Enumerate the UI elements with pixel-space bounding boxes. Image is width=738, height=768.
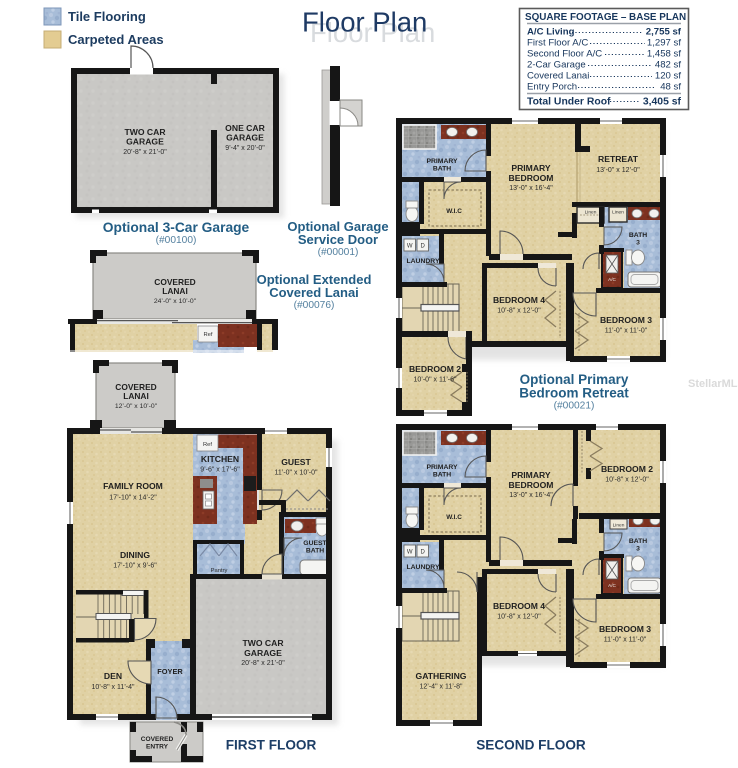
svg-text:KITCHEN: KITCHEN <box>201 454 239 464</box>
svg-text:BEDROOM 3: BEDROOM 3 <box>599 624 651 634</box>
svg-text:GARAGE: GARAGE <box>244 648 282 658</box>
svg-text:13’-0" x 12’-0": 13’-0" x 12’-0" <box>596 167 640 174</box>
svg-text:482 sf: 482 sf <box>655 60 681 71</box>
svg-text:SQUARE FOOTAGE – BASE PLAN: SQUARE FOOTAGE – BASE PLAN <box>525 12 686 23</box>
svg-text:12’-0" x 10’-0": 12’-0" x 10’-0" <box>115 403 158 410</box>
svg-text:BATH: BATH <box>433 166 451 173</box>
svg-text:FOYER: FOYER <box>157 667 183 676</box>
svg-text:BATH: BATH <box>629 538 647 545</box>
svg-text:3: 3 <box>636 546 640 553</box>
svg-text:PRIMARY: PRIMARY <box>426 158 458 165</box>
svg-text:12’-4" x 11’-8": 12’-4" x 11’-8" <box>420 684 463 691</box>
svg-text:17’-10" x 9’-6": 17’-10" x 9’-6" <box>113 563 157 570</box>
svg-text:Linen: Linen <box>585 210 597 216</box>
svg-text:10’-8" x 12’-0": 10’-8" x 12’-0" <box>497 614 541 621</box>
svg-text:GUEST: GUEST <box>303 540 327 547</box>
svg-text:DEN: DEN <box>104 671 122 681</box>
svg-text:11’-0" x 11’-0": 11’-0" x 11’-0" <box>605 328 648 335</box>
svg-text:A/C: A/C <box>608 583 616 588</box>
svg-text:BEDROOM 3: BEDROOM 3 <box>600 315 652 325</box>
svg-text:2,755 sf: 2,755 sf <box>646 27 682 38</box>
svg-text:1,458 sf: 1,458 sf <box>647 49 681 60</box>
svg-text:1,297 sf: 1,297 sf <box>647 38 681 49</box>
svg-text:SECOND FLOOR: SECOND FLOOR <box>476 738 586 753</box>
svg-text:Pantry: Pantry <box>211 568 228 574</box>
svg-text:120 sf: 120 sf <box>655 71 681 82</box>
svg-text:GARAGE: GARAGE <box>226 133 264 143</box>
svg-text:Ref: Ref <box>203 442 212 448</box>
svg-text:BATH: BATH <box>306 548 324 555</box>
svg-text:ONE CAR: ONE CAR <box>225 123 265 133</box>
svg-text:Entry Porch: Entry Porch <box>527 82 577 93</box>
svg-text:TWO CAR: TWO CAR <box>242 638 284 648</box>
svg-text:10’-0" x 11’-6": 10’-0" x 11’-6" <box>414 377 457 384</box>
svg-text:BATH: BATH <box>433 472 451 479</box>
svg-text:10’-8" x 12’-0": 10’-8" x 12’-0" <box>605 477 649 484</box>
svg-text:GATHERING: GATHERING <box>416 671 467 681</box>
svg-text:StellarMLS: StellarMLS <box>688 378 738 390</box>
svg-text:17’-10" x 14’-2": 17’-10" x 14’-2" <box>109 495 157 502</box>
svg-text:10’-8" x 11’-4": 10’-8" x 11’-4" <box>92 684 135 691</box>
svg-text:W: W <box>407 550 413 556</box>
svg-text:BEDROOM 2: BEDROOM 2 <box>409 364 461 374</box>
svg-text:Covered Lanai: Covered Lanai <box>527 71 589 82</box>
svg-text:Service Door: Service Door <box>298 232 378 247</box>
svg-text:Second Floor A/C: Second Floor A/C <box>527 49 602 60</box>
svg-text:3,405 sf: 3,405 sf <box>643 97 682 108</box>
svg-text:RETREAT: RETREAT <box>598 154 639 164</box>
svg-text:9’-6" x 17’-6": 9’-6" x 17’-6" <box>200 467 240 474</box>
svg-text:Total Under Roof: Total Under Roof <box>527 97 611 108</box>
svg-text:ENTRY: ENTRY <box>146 744 169 751</box>
svg-text:BEDROOM 4: BEDROOM 4 <box>493 295 545 305</box>
svg-text:LANAI: LANAI <box>162 286 188 296</box>
svg-text:BEDROOM 4: BEDROOM 4 <box>493 601 545 611</box>
svg-text:FIRST FLOOR: FIRST FLOOR <box>226 738 317 753</box>
svg-text:PRIMARY: PRIMARY <box>511 163 551 173</box>
svg-text:LAUNDRY: LAUNDRY <box>407 258 440 265</box>
svg-text:(#00021): (#00021) <box>554 401 595 412</box>
svg-text:20’-8" x 21’-0": 20’-8" x 21’-0" <box>241 660 285 667</box>
svg-text:13’-0" x 16’-4": 13’-0" x 16’-4" <box>509 185 553 192</box>
svg-text:Bedroom Retreat: Bedroom Retreat <box>519 386 629 401</box>
svg-text:Linen: Linen <box>613 523 625 529</box>
svg-text:GUEST: GUEST <box>281 457 311 467</box>
svg-text:(#00001): (#00001) <box>318 247 359 258</box>
svg-text:BEDROOM: BEDROOM <box>509 173 554 183</box>
svg-text:A/C Living: A/C Living <box>527 27 575 38</box>
svg-text:Optional 3-Car Garage: Optional 3-Car Garage <box>103 220 250 235</box>
svg-text:13’-0" x 16’-4": 13’-0" x 16’-4" <box>509 492 553 499</box>
svg-text:W.I.C: W.I.C <box>446 208 462 215</box>
svg-text:11’-0" x 10’-0": 11’-0" x 10’-0" <box>275 470 318 477</box>
svg-text:A/C: A/C <box>608 277 616 282</box>
svg-text:Covered Lanai: Covered Lanai <box>269 285 359 300</box>
svg-text:(#00076): (#00076) <box>294 300 335 311</box>
svg-text:TWO CAR: TWO CAR <box>124 127 166 137</box>
svg-text:(#00100): (#00100) <box>156 235 197 246</box>
svg-text:D: D <box>421 244 426 250</box>
svg-text:DINING: DINING <box>120 550 150 560</box>
svg-text:W.I.C: W.I.C <box>446 514 462 521</box>
svg-text:PRIMARY: PRIMARY <box>426 464 458 471</box>
svg-text:LANAI: LANAI <box>123 391 149 401</box>
svg-text:D: D <box>421 550 426 556</box>
svg-text:Floor Plan: Floor Plan <box>302 7 427 38</box>
svg-text:COVERED: COVERED <box>141 736 174 743</box>
svg-text:9’-4" x 20’-0": 9’-4" x 20’-0" <box>225 145 265 152</box>
svg-text:PRIMARY: PRIMARY <box>511 470 551 480</box>
svg-text:Ref: Ref <box>203 332 212 338</box>
svg-text:First Floor A/C: First Floor A/C <box>527 38 588 49</box>
svg-text:10’-8" x 12’-0": 10’-8" x 12’-0" <box>497 308 541 315</box>
svg-text:Tile Flooring: Tile Flooring <box>68 9 146 24</box>
svg-text:Linen: Linen <box>612 210 624 216</box>
svg-text:48 sf: 48 sf <box>660 82 681 93</box>
svg-text:LAUNDRY: LAUNDRY <box>407 564 440 571</box>
svg-text:BATH: BATH <box>629 232 647 239</box>
svg-text:2-Car Garage: 2-Car Garage <box>527 60 586 71</box>
svg-text:FAMILY ROOM: FAMILY ROOM <box>103 481 163 491</box>
svg-text:3: 3 <box>636 240 640 247</box>
svg-text:W: W <box>407 244 413 250</box>
svg-text:BEDROOM: BEDROOM <box>509 480 554 490</box>
svg-text:GARAGE: GARAGE <box>126 137 164 147</box>
svg-text:20’-8" x 21’-0": 20’-8" x 21’-0" <box>123 149 167 156</box>
svg-text:24’-0" x 10’-0": 24’-0" x 10’-0" <box>154 298 197 305</box>
svg-text:Carpeted Areas: Carpeted Areas <box>68 32 164 47</box>
svg-text:BEDROOM 2: BEDROOM 2 <box>601 464 653 474</box>
svg-text:11’-0" x 11’-0": 11’-0" x 11’-0" <box>604 637 647 644</box>
